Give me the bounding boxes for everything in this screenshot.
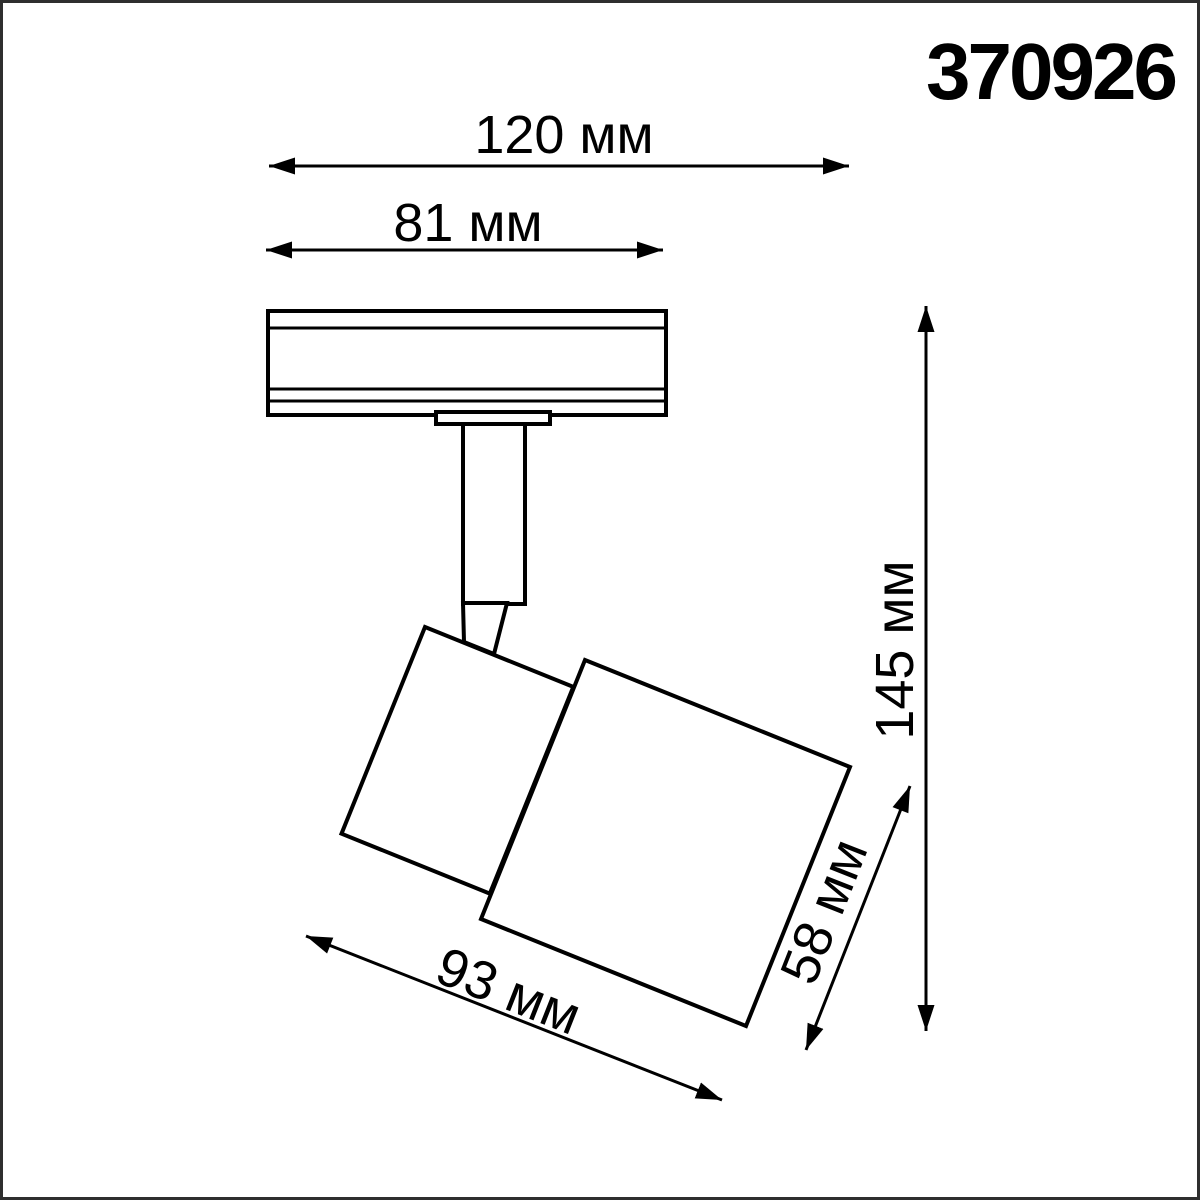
dim-81: 81 мм — [266, 193, 663, 253]
product-code: 370926 — [926, 27, 1175, 116]
drawing-page: 370926 120 мм 81 мм — [0, 0, 1200, 1200]
dim-label-81: 81 мм — [393, 193, 542, 253]
track-adapter-drawing — [268, 311, 666, 654]
dim-label-120: 120 мм — [474, 105, 653, 165]
adapter-plate — [436, 412, 550, 424]
dim-120: 120 мм — [269, 105, 849, 166]
dim-label-145: 145 мм — [865, 560, 925, 739]
dimension-drawing: 370926 120 мм 81 мм — [3, 3, 1200, 1200]
dim-145: 145 мм — [865, 306, 926, 1031]
stem — [463, 423, 525, 604]
